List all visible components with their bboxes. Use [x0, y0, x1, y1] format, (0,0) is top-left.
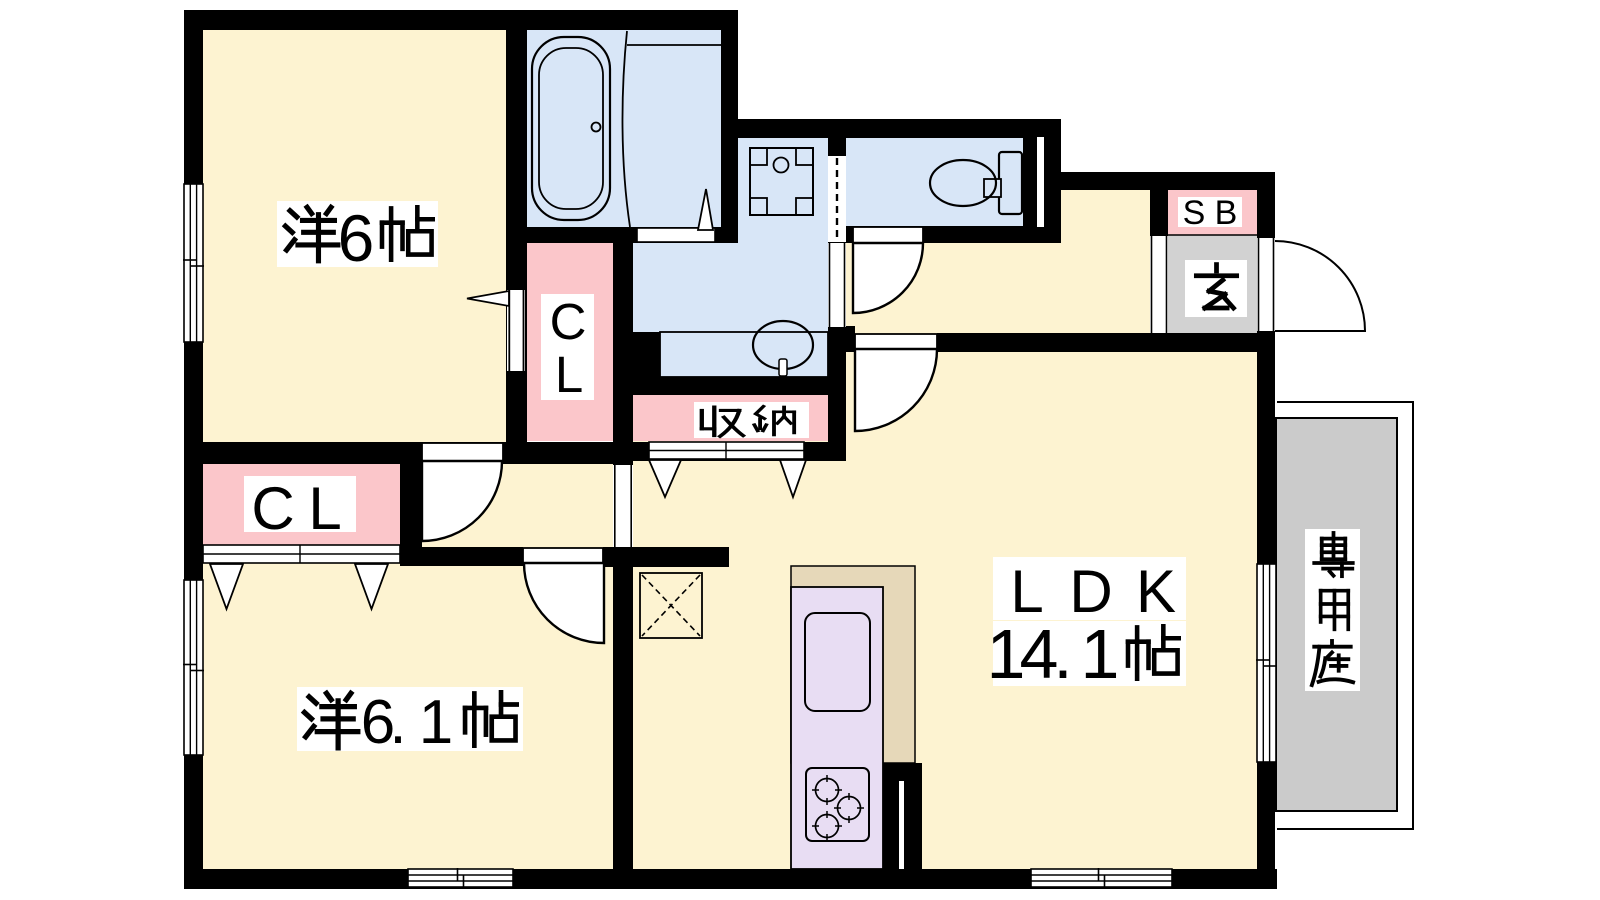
- svg-text:C: C: [251, 475, 294, 542]
- svg-text:K: K: [1136, 558, 1176, 625]
- svg-text:S: S: [1183, 194, 1206, 232]
- svg-text:C: C: [550, 293, 587, 350]
- svg-text:6: 6: [338, 201, 375, 275]
- svg-text:1: 1: [1081, 615, 1120, 693]
- svg-text:B: B: [1215, 194, 1238, 232]
- svg-text:.: .: [389, 688, 406, 757]
- svg-text:L: L: [555, 346, 583, 403]
- svg-text:1: 1: [419, 688, 453, 757]
- svg-text:L: L: [308, 475, 341, 542]
- svg-text:.: .: [1053, 615, 1072, 693]
